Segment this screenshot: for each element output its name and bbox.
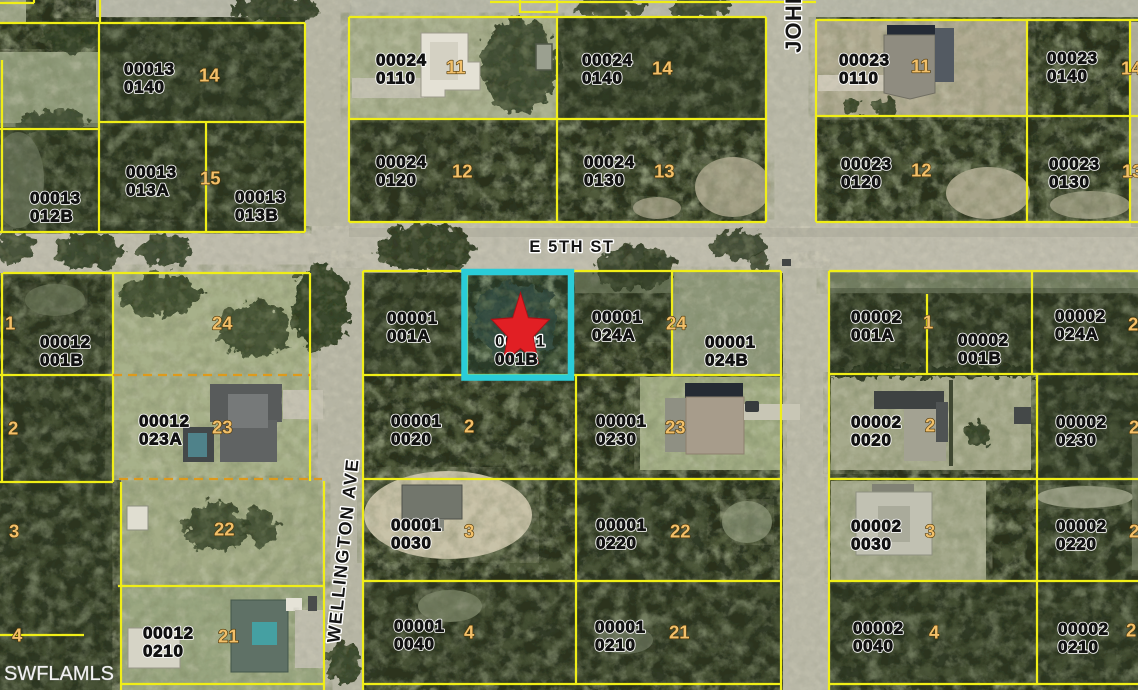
svg-text:11: 11: [446, 57, 466, 78]
svg-text:001A: 001A: [851, 326, 894, 345]
svg-text:00002: 00002: [1055, 307, 1106, 326]
svg-text:0110: 0110: [376, 69, 416, 88]
svg-text:2: 2: [8, 418, 18, 439]
svg-text:0210: 0210: [595, 636, 636, 655]
svg-text:0230: 0230: [596, 430, 637, 449]
svg-text:00002: 00002: [851, 517, 902, 536]
svg-text:0130: 0130: [584, 171, 625, 190]
svg-text:00023: 00023: [841, 155, 892, 174]
svg-text:22: 22: [670, 521, 691, 542]
svg-text:3: 3: [464, 521, 474, 542]
svg-text:00012: 00012: [40, 333, 91, 352]
svg-text:024A: 024A: [592, 326, 635, 345]
svg-text:0040: 0040: [853, 637, 894, 656]
svg-text:00012: 00012: [143, 624, 194, 643]
svg-text:0220: 0220: [596, 534, 637, 553]
svg-text:00013: 00013: [235, 188, 286, 207]
svg-text:2: 2: [925, 415, 935, 436]
svg-text:024B: 024B: [705, 351, 748, 370]
svg-text:4: 4: [12, 625, 23, 646]
svg-text:00013: 00013: [126, 163, 177, 182]
svg-text:4: 4: [929, 622, 940, 643]
svg-text:00002: 00002: [1056, 413, 1107, 432]
svg-text:00001: 00001: [391, 412, 442, 431]
svg-text:00013: 00013: [30, 189, 81, 208]
svg-text:0020: 0020: [851, 431, 892, 450]
svg-text:0220: 0220: [1056, 535, 1097, 554]
svg-text:0210: 0210: [143, 642, 184, 661]
svg-text:1: 1: [5, 313, 15, 334]
svg-text:2: 2: [464, 416, 474, 437]
svg-text:21: 21: [218, 626, 239, 647]
svg-text:00002: 00002: [851, 413, 902, 432]
svg-text:0040: 0040: [394, 635, 435, 654]
svg-text:2: 2: [1126, 620, 1136, 641]
svg-text:1: 1: [923, 312, 933, 333]
svg-text:24: 24: [666, 313, 687, 334]
svg-text:23: 23: [212, 417, 233, 438]
svg-text:0030: 0030: [391, 534, 432, 553]
svg-text:0140: 0140: [1047, 67, 1088, 86]
svg-text:00024: 00024: [582, 51, 633, 70]
svg-text:00001: 00001: [394, 617, 445, 636]
svg-text:001B: 001B: [958, 349, 1001, 368]
svg-text:2: 2: [1129, 521, 1138, 542]
svg-text:024A: 024A: [1055, 325, 1098, 344]
svg-text:00024: 00024: [376, 51, 427, 70]
svg-text:023A: 023A: [139, 430, 182, 449]
svg-text:012B: 012B: [30, 207, 73, 226]
svg-text:013A: 013A: [126, 181, 169, 200]
svg-text:00024: 00024: [376, 153, 427, 172]
svg-text:23: 23: [665, 417, 686, 438]
svg-text:4: 4: [464, 622, 475, 643]
svg-text:00023: 00023: [839, 51, 890, 70]
svg-text:0030: 0030: [851, 535, 892, 554]
svg-text:0140: 0140: [582, 69, 623, 88]
svg-text:0130: 0130: [1049, 173, 1090, 192]
svg-text:JOHNS: JOHNS: [781, 0, 806, 53]
svg-text:12: 12: [452, 161, 473, 182]
svg-text:00001: 00001: [596, 412, 647, 431]
svg-text:00002: 00002: [1056, 517, 1107, 536]
svg-text:001B: 001B: [495, 350, 538, 369]
svg-text:14: 14: [199, 65, 220, 86]
svg-text:12: 12: [911, 160, 932, 181]
svg-text:00023: 00023: [1047, 49, 1098, 68]
svg-text:13: 13: [654, 161, 675, 182]
svg-text:0140: 0140: [124, 78, 165, 97]
svg-text:00013: 00013: [124, 60, 175, 79]
svg-text:15: 15: [200, 168, 221, 189]
svg-text:21: 21: [669, 622, 690, 643]
svg-text:22: 22: [214, 519, 235, 540]
svg-text:SWFLAMLS: SWFLAMLS: [4, 663, 114, 685]
svg-text:00023: 00023: [1049, 155, 1100, 174]
svg-text:3: 3: [9, 521, 19, 542]
svg-text:00002: 00002: [853, 619, 904, 638]
svg-text:24: 24: [212, 313, 233, 334]
svg-text:0120: 0120: [376, 171, 417, 190]
svg-text:0110: 0110: [839, 69, 879, 88]
svg-text:00012: 00012: [139, 412, 190, 431]
svg-text:00001: 00001: [705, 333, 756, 352]
svg-text:00001: 00001: [592, 308, 643, 327]
svg-text:00001: 00001: [391, 516, 442, 535]
svg-text:00001: 00001: [595, 618, 646, 637]
svg-text:14: 14: [652, 58, 673, 79]
svg-text:00024: 00024: [584, 153, 635, 172]
svg-text:0230: 0230: [1056, 431, 1097, 450]
svg-text:00002: 00002: [1058, 620, 1109, 639]
svg-text:0020: 0020: [391, 430, 432, 449]
svg-text:0210: 0210: [1058, 638, 1099, 657]
svg-text:001B: 001B: [40, 351, 83, 370]
svg-text:00001: 00001: [387, 309, 438, 328]
svg-text:001A: 001A: [387, 327, 430, 346]
svg-text:14: 14: [1121, 58, 1138, 79]
svg-text:013B: 013B: [235, 206, 278, 225]
svg-text:0120: 0120: [841, 173, 882, 192]
svg-text:E 5TH ST: E 5TH ST: [529, 238, 614, 256]
svg-text:13: 13: [1122, 161, 1138, 182]
svg-text:3: 3: [925, 521, 935, 542]
svg-text:2: 2: [1129, 417, 1138, 438]
svg-text:00001: 00001: [596, 516, 647, 535]
svg-text:2: 2: [1128, 314, 1138, 335]
svg-text:00002: 00002: [958, 331, 1009, 350]
svg-text:00002: 00002: [851, 308, 902, 327]
svg-text:11: 11: [911, 56, 931, 77]
